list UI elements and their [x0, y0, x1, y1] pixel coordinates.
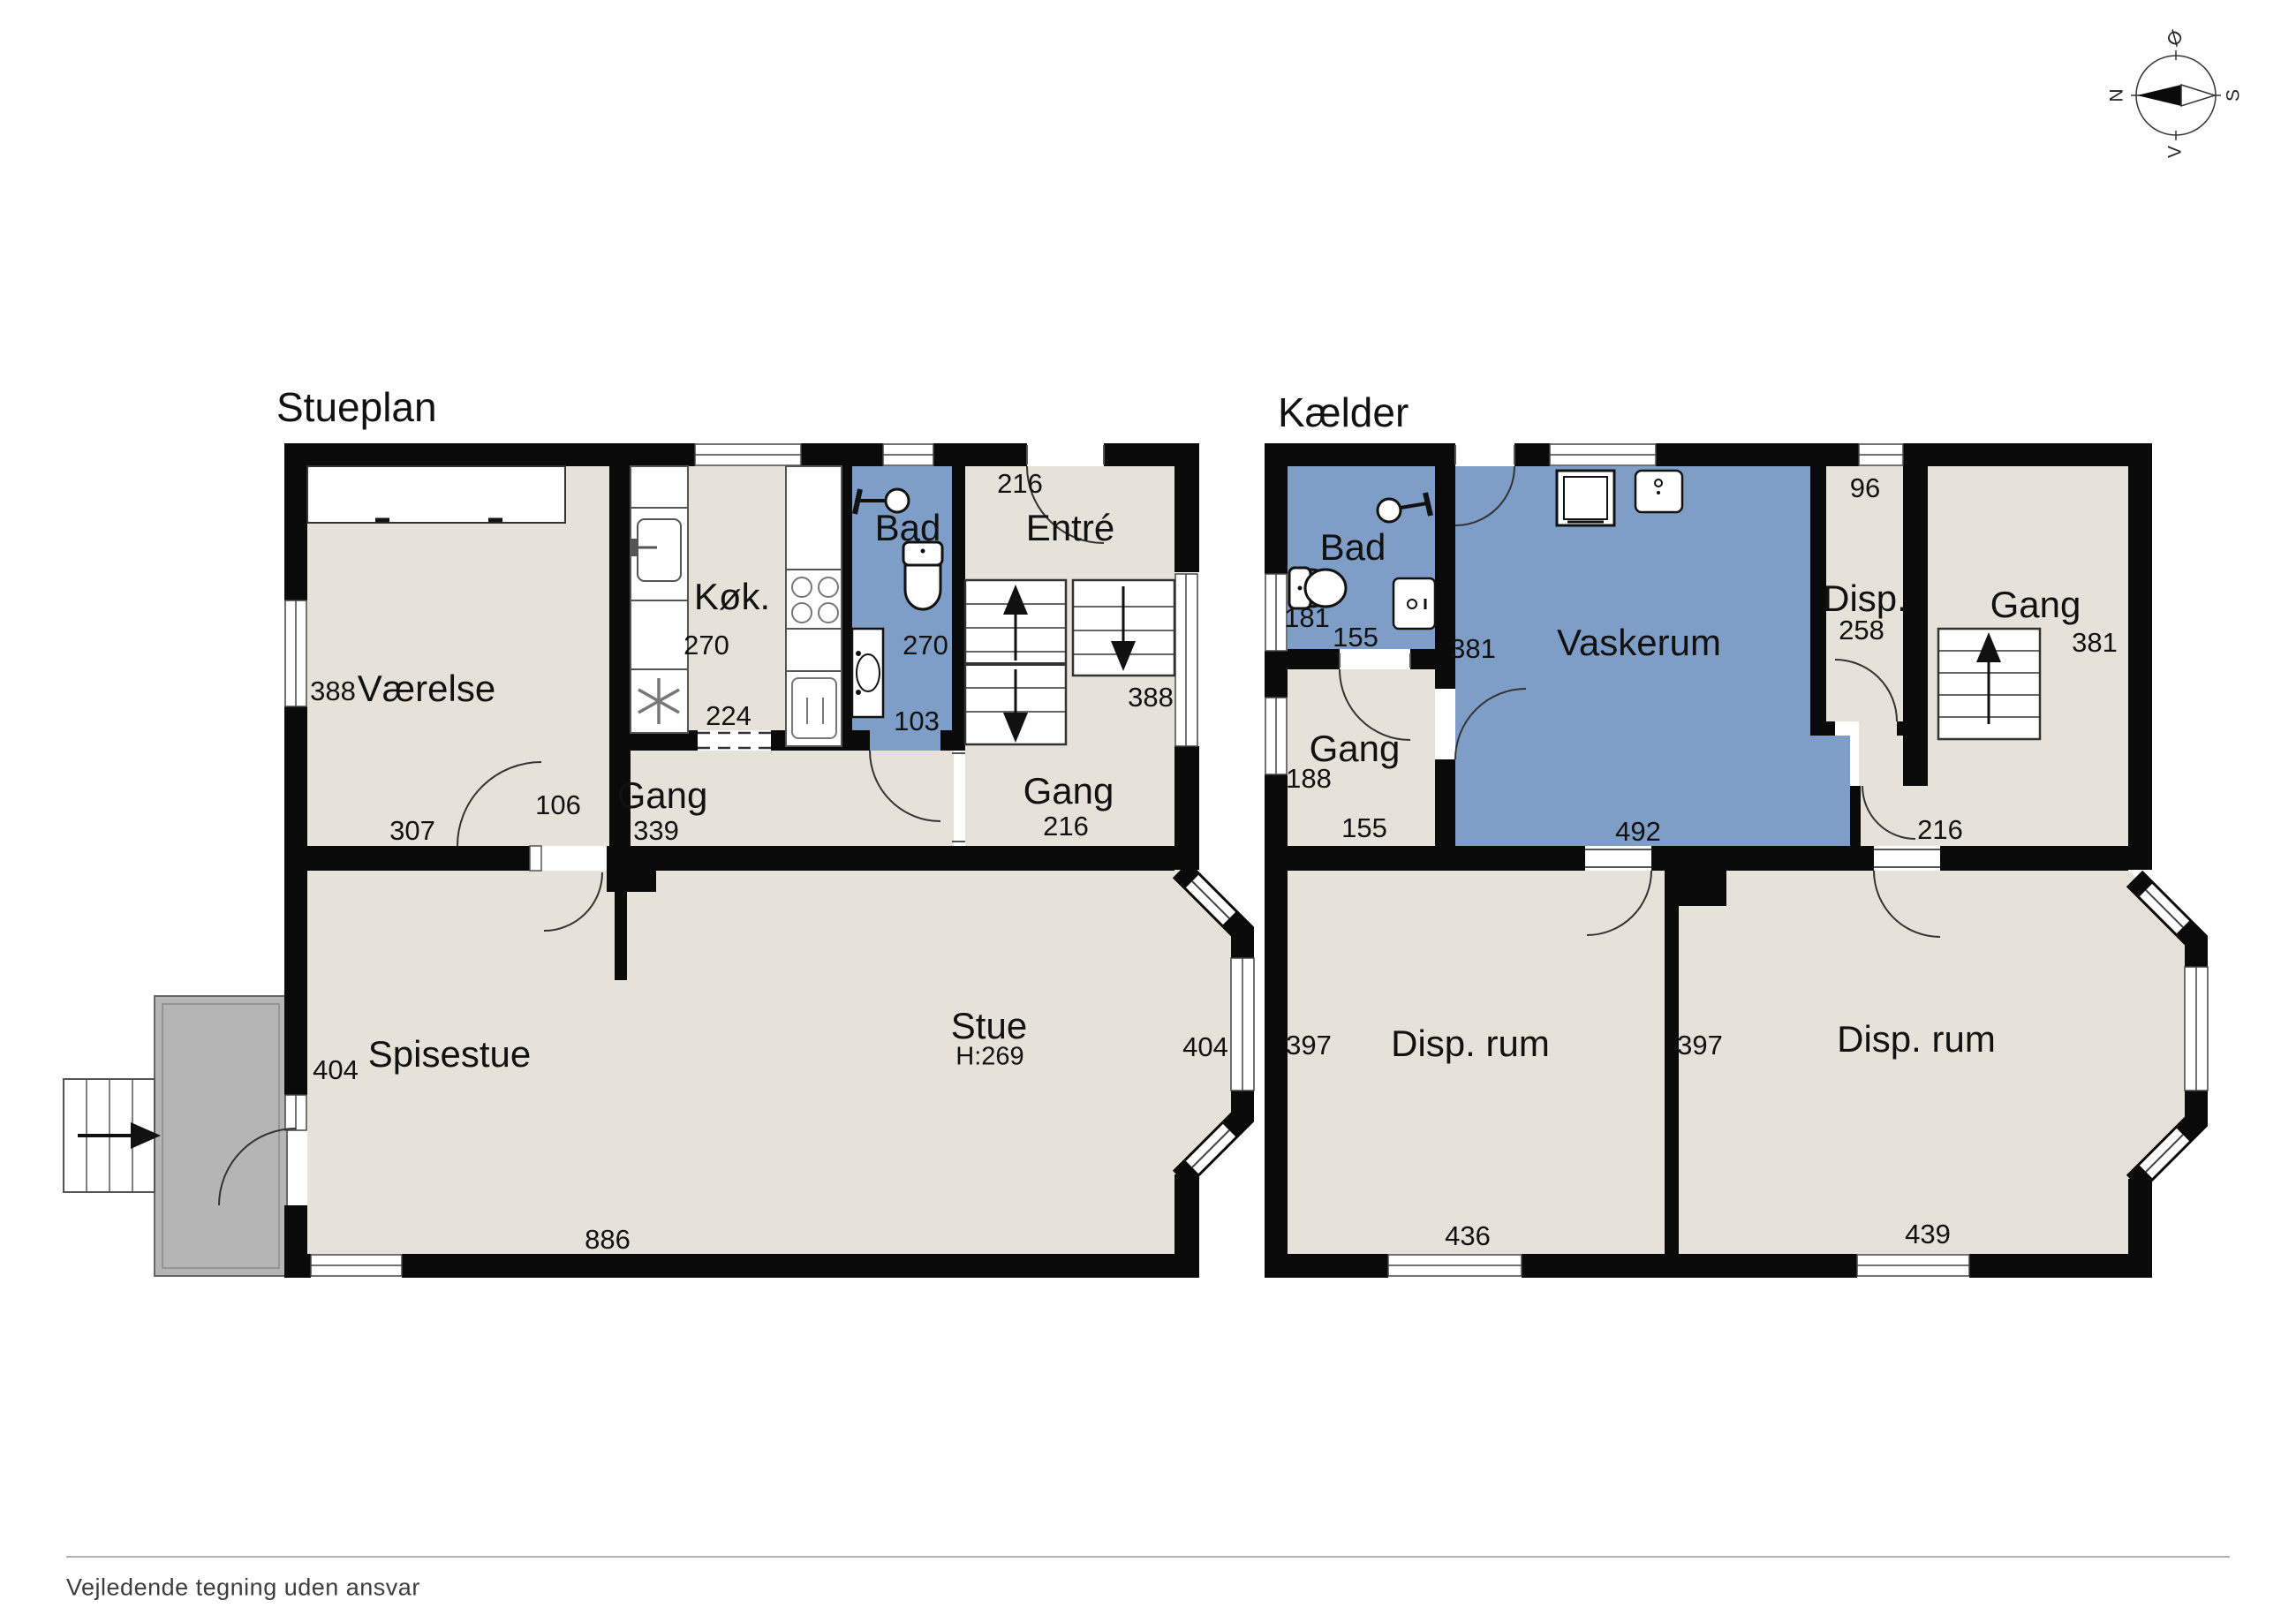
- dim-kaelder-gang-width: 155: [1341, 812, 1387, 844]
- washbasin-icon: [1393, 578, 1435, 629]
- koek-opening: [698, 730, 771, 751]
- room-label-disp-rum-oest: Disp. rum: [1837, 1018, 1996, 1061]
- window-disp-rum-vest-south: [1388, 1255, 1522, 1276]
- kaelder-staircase: [1938, 629, 2040, 739]
- room-label-vaerelse: Værelse: [358, 668, 495, 710]
- dim-vaerelse-height: 388: [310, 676, 356, 707]
- window-spisestue-south: [311, 1255, 402, 1276]
- dim-disp-height: 258: [1839, 615, 1884, 646]
- vaerelse-wardrobe: [307, 466, 565, 523]
- room-label-gang-east: Gang: [1023, 770, 1114, 812]
- koek-counter-left: [631, 466, 688, 733]
- dim-kaelder-bad-height: 181: [1284, 602, 1330, 634]
- floorplan-drawing: N Ø S V: [0, 0, 2296, 1623]
- dim-vaskerum-width: 492: [1615, 816, 1661, 848]
- kaelder-plan: [1265, 443, 2208, 1278]
- window-top-bad: [883, 444, 933, 465]
- room-label-koek: Køk.: [694, 576, 770, 618]
- dim-bad-width: 103: [894, 706, 940, 737]
- dim-gang-width: 339: [633, 815, 679, 847]
- window-kaelder-bay-east: [2185, 967, 2208, 1091]
- window-top-vaskerum: [1550, 444, 1656, 465]
- terrace-stairs: [64, 1079, 161, 1192]
- dim-gang-east-width: 216: [1043, 811, 1089, 842]
- dim-vaskerum-height: 381: [1450, 633, 1496, 665]
- dim-entre-door: 216: [997, 468, 1043, 500]
- room-label-spisestue: Spisestue: [368, 1033, 531, 1076]
- room-label-disp-rum-vest: Disp. rum: [1391, 1023, 1550, 1065]
- stueplan-title: Stueplan: [276, 383, 437, 431]
- dim-koek-width: 224: [706, 700, 751, 732]
- dim-disp-width: 96: [1850, 472, 1880, 504]
- room-label-stue: Stue: [951, 1005, 1027, 1047]
- compass-north-label: N: [2107, 88, 2127, 102]
- dim-stue-width: 886: [585, 1224, 631, 1256]
- koek-counter-right: [786, 466, 842, 746]
- compass-east-label: Ø: [2163, 26, 2187, 50]
- dim-spisestue-height: 404: [313, 1054, 359, 1086]
- compass-west-label: V: [2165, 146, 2186, 158]
- window-bay-east: [1231, 958, 1254, 1091]
- stue-ceiling-height: H:269: [955, 1043, 1023, 1072]
- window-top-koek: [695, 444, 801, 465]
- window-entre-east: [1175, 574, 1197, 746]
- room-label-kaelder-gang-east: Gang: [1990, 584, 2081, 626]
- disp-rum-oest-floor: [1679, 871, 2128, 1254]
- room-label-disp: Disp.: [1823, 577, 1907, 620]
- compass-south-label: S: [2224, 89, 2244, 102]
- room-label-vaskerum: Vaskerum: [1557, 622, 1721, 664]
- window-vaerelse-west: [285, 600, 306, 706]
- dim-disp-rum-vest-height: 397: [1286, 1030, 1332, 1061]
- window-disp-rum-oest-south: [1857, 1255, 1969, 1276]
- washing-machine-icon: [1557, 471, 1614, 525]
- disclaimer-text: Vejledende tegning uden ansvar: [66, 1574, 420, 1602]
- room-label-entre: Entré: [1026, 507, 1114, 549]
- kaelder-title: Kælder: [1278, 389, 1409, 436]
- toilet-icon: [903, 542, 942, 609]
- stueplan-plan: [64, 443, 1254, 1278]
- dim-kaelder-gang-east-width: 216: [1917, 814, 1963, 846]
- compass-rose: N Ø S V: [2107, 26, 2244, 158]
- room-label-gang: Gang: [617, 774, 708, 817]
- dim-entre-height: 388: [1128, 682, 1174, 713]
- dim-disp-rum-vest-width: 436: [1445, 1220, 1491, 1252]
- dim-disp-rum-oest-width: 439: [1905, 1219, 1951, 1250]
- room-label-bad: Bad: [875, 507, 941, 549]
- floorplan-page: N Ø S V Stueplan Kælder Værelse 388 307 …: [0, 0, 2296, 1623]
- dim-kaelder-bad-width: 155: [1333, 622, 1378, 653]
- dim-stue-height: 404: [1182, 1031, 1228, 1063]
- dim-disp-rum-oest-height: 397: [1677, 1030, 1723, 1061]
- dim-vaerelse-width: 307: [389, 815, 435, 847]
- dim-koek-height: 270: [684, 630, 729, 661]
- dim-kaelder-gang-height: 188: [1286, 763, 1332, 795]
- dim-bad-height: 270: [903, 630, 948, 661]
- dim-kaelder-gang-east-height: 381: [2072, 627, 2118, 659]
- dim-gang-door: 106: [535, 789, 581, 821]
- terrace: [64, 996, 287, 1276]
- laundry-sink-icon: [1635, 471, 1682, 512]
- washbasin-icon: [852, 629, 883, 717]
- window-top-disp: [1859, 444, 1903, 465]
- window-spisestue-west: [285, 1095, 306, 1130]
- room-label-kaelder-bad: Bad: [1320, 526, 1386, 569]
- window-gang-west: [1265, 698, 1287, 774]
